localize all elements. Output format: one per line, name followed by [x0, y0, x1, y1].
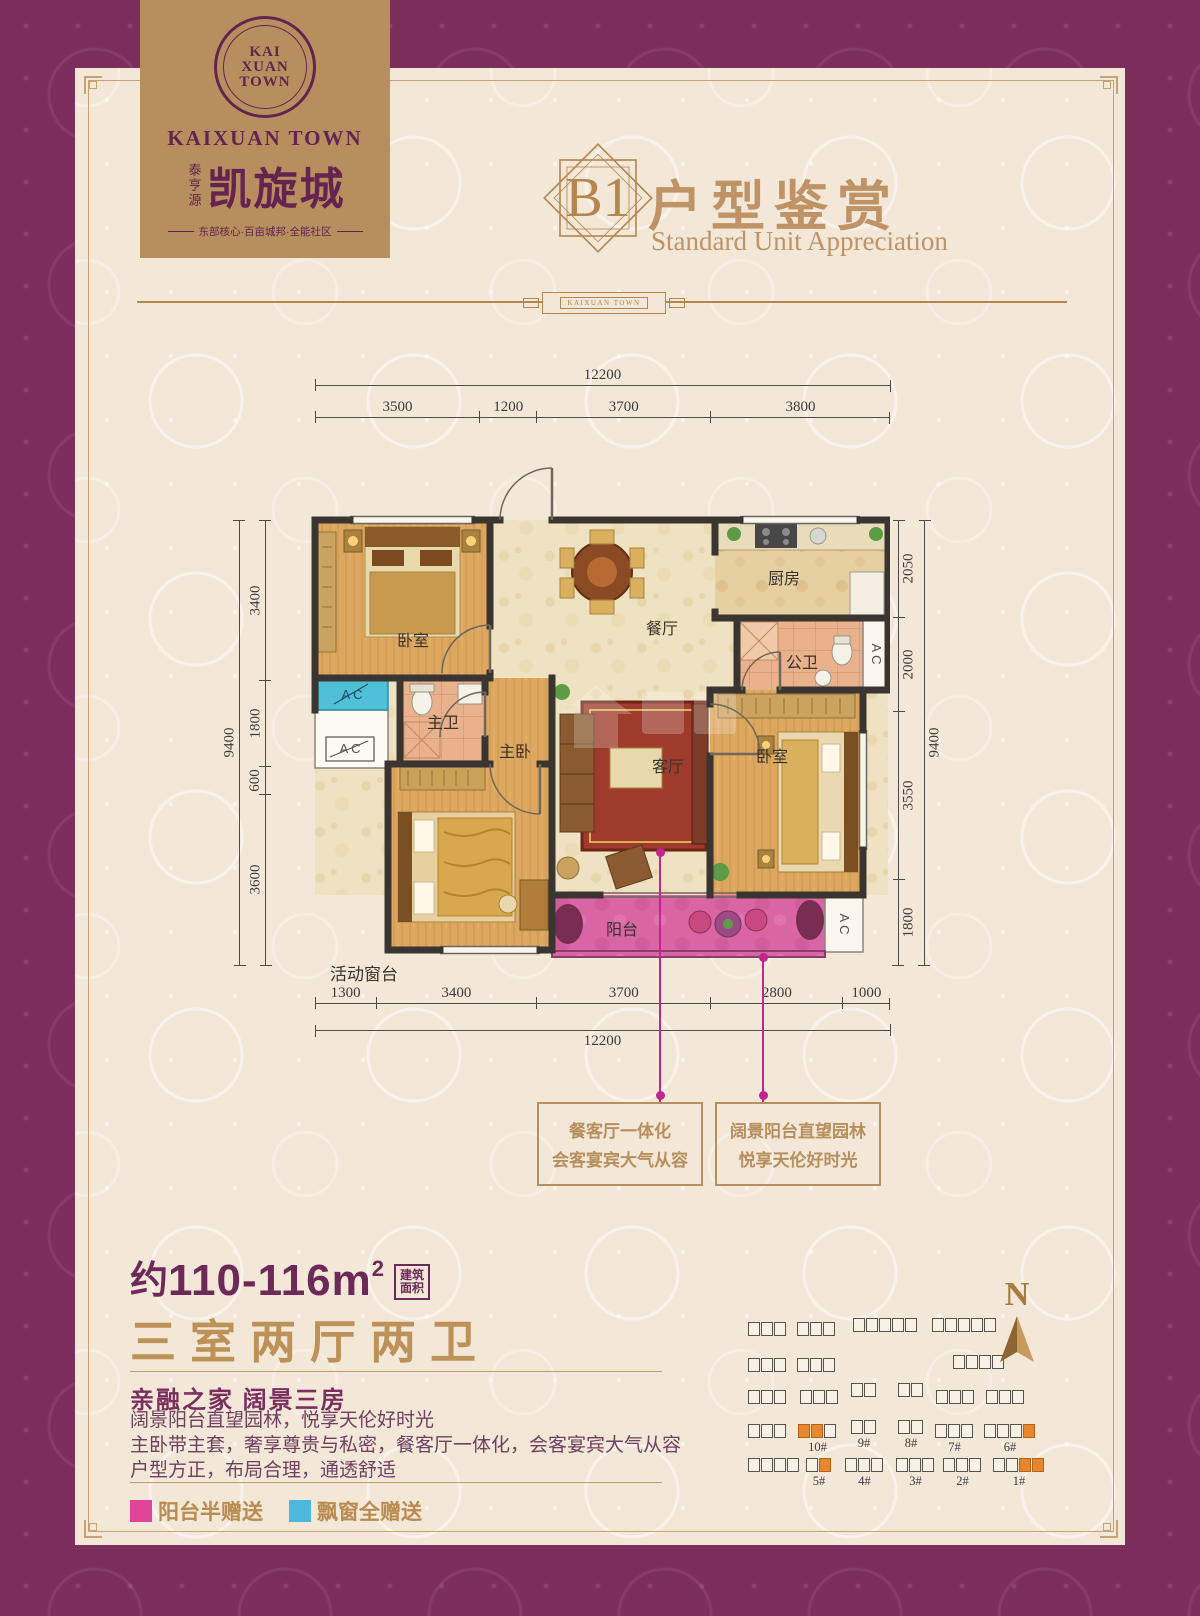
area-value: 110-116m — [168, 1258, 372, 1304]
building-unit — [999, 1390, 1011, 1404]
building-unit — [958, 1318, 970, 1332]
building-unit — [774, 1424, 786, 1438]
building-unit — [866, 1318, 878, 1332]
dim-segment: 600 — [246, 766, 266, 794]
brand-logo-block: KAI XUAN TOWN KAIXUAN TOWN 泰亨源 凯旋城 东部核心·… — [140, 0, 390, 258]
site-building — [806, 1458, 831, 1472]
site-building — [935, 1424, 973, 1438]
dim-segment: 2000 — [898, 617, 918, 712]
building-unit — [898, 1383, 910, 1397]
site-building — [936, 1390, 974, 1404]
room-label-master-bedroom: 主卧 — [499, 743, 531, 761]
building-unit — [948, 1424, 960, 1438]
site-plan: 10#9#8#7#6#5#4#3#2#1# — [700, 1270, 1130, 1505]
room-label-dining: 餐厅 — [646, 620, 678, 638]
site-building — [748, 1322, 786, 1336]
chair — [499, 895, 517, 913]
dim-segment: 3500 — [315, 398, 480, 418]
balcony-chair — [689, 911, 711, 933]
dim-segment: 1000 — [843, 984, 890, 1004]
building-unit — [979, 1355, 991, 1369]
site-building — [853, 1318, 917, 1332]
site-building — [748, 1424, 786, 1438]
building-unit — [761, 1424, 773, 1438]
description-line: 阔景阳台直望园林，悦享天伦好时光 — [130, 1408, 681, 1433]
building-unit — [800, 1390, 812, 1404]
building-label: 3# — [896, 1474, 935, 1489]
building-unit — [774, 1390, 786, 1404]
dim-segment: 9400 — [924, 520, 944, 965]
building-unit — [896, 1458, 908, 1472]
building-unit — [935, 1424, 947, 1438]
area-superscript: 2 — [372, 1258, 384, 1280]
building-unit — [997, 1424, 1009, 1438]
dim-top-total: 12200 — [315, 366, 890, 386]
callout-dot-icon — [759, 1091, 768, 1100]
building-unit — [892, 1318, 904, 1332]
room-label-kitchen: 厨房 — [768, 570, 800, 588]
building-label: 5# — [806, 1474, 832, 1489]
divider — [130, 1371, 662, 1372]
brand-name-en: KAIXUAN TOWN — [140, 126, 390, 151]
building-unit — [761, 1458, 773, 1472]
building-unit — [797, 1358, 809, 1372]
dim-bottom-total: 12200 — [315, 1030, 890, 1052]
side-table — [557, 857, 579, 879]
highlighted-unit — [1019, 1458, 1031, 1472]
site-building — [797, 1358, 835, 1372]
ac-label: A C — [340, 741, 361, 756]
divider-badge: KAIXUAN TOWN — [542, 292, 666, 314]
balcony-chair — [745, 909, 767, 931]
dim-segment: 3600 — [246, 795, 266, 965]
building-unit — [774, 1458, 786, 1472]
dim-left-segments: 340018006003600 — [246, 520, 266, 965]
sink — [810, 528, 826, 544]
description-block: 阔景阳台直望园林，悦享天伦好时光 主卧带主套，奢享尊贵与私密，餐客厅一体化，会客… — [130, 1408, 681, 1483]
kitchen-counter — [718, 522, 885, 550]
pink-swatch-icon — [130, 1500, 152, 1522]
building-label: 7# — [935, 1440, 974, 1455]
building-unit — [864, 1420, 876, 1434]
site-building — [932, 1318, 996, 1332]
building-label: 1# — [993, 1474, 1045, 1489]
dim-segment: 12200 — [315, 366, 890, 386]
site-building — [896, 1458, 934, 1472]
dim-segment: 12200 — [315, 1030, 890, 1052]
building-unit — [1010, 1424, 1022, 1438]
brand-monogram-icon: KAI XUAN TOWN — [214, 16, 316, 118]
plant — [553, 904, 583, 944]
brand-name: 凯旋城 — [208, 153, 346, 217]
building-label: 8# — [898, 1436, 924, 1451]
building-unit — [932, 1318, 944, 1332]
room-label-balcony: 阳台 — [606, 921, 638, 939]
building-unit — [748, 1322, 760, 1336]
brand-tagline: 东部核心·百亩城邦·全能社区 — [140, 224, 390, 239]
toilet — [412, 689, 432, 715]
building-unit — [774, 1322, 786, 1336]
building-unit — [823, 1322, 835, 1336]
building-unit — [956, 1458, 968, 1472]
ac-label: A C — [869, 644, 884, 665]
site-building — [748, 1390, 786, 1404]
dim-segment: 3800 — [711, 398, 890, 418]
frame-corner-icon — [1100, 1520, 1118, 1538]
building-unit — [858, 1458, 870, 1472]
frame-corner-icon — [84, 1520, 102, 1538]
dim-right-total: 9400 — [924, 520, 944, 965]
site-building — [898, 1420, 923, 1434]
building-label: 4# — [845, 1474, 884, 1489]
building-unit — [905, 1318, 917, 1332]
building-unit — [826, 1390, 838, 1404]
building-unit — [911, 1383, 923, 1397]
plant — [869, 527, 883, 541]
dim-segment: 1800 — [246, 681, 266, 766]
building-unit — [909, 1458, 921, 1472]
site-building — [851, 1383, 876, 1397]
frame-corner-icon — [1100, 76, 1118, 94]
site-building — [800, 1390, 838, 1404]
callout-line — [659, 852, 661, 1102]
plant — [711, 863, 729, 881]
building-label: 6# — [984, 1440, 1036, 1455]
callout-dot-icon — [656, 848, 665, 857]
blue-swatch-icon — [289, 1500, 311, 1522]
building-unit — [761, 1390, 773, 1404]
site-building — [993, 1458, 1044, 1472]
site-building — [797, 1322, 835, 1336]
dim-segment: 1200 — [480, 398, 537, 418]
plant — [727, 527, 741, 541]
building-unit — [748, 1390, 760, 1404]
callout-dot-icon — [759, 953, 768, 962]
legend-balcony: 阳台半赠送 — [130, 1496, 263, 1526]
description-line: 户型方正，布局合理，通透舒适 — [130, 1458, 681, 1483]
highlighted-unit — [1023, 1424, 1035, 1438]
highlighted-unit — [819, 1458, 831, 1472]
building-unit — [806, 1458, 818, 1472]
wardrobe — [718, 694, 855, 718]
site-building — [748, 1358, 786, 1372]
site-building — [851, 1420, 876, 1434]
closet — [400, 766, 485, 790]
building-unit — [949, 1390, 961, 1404]
dim-segment: 1300 — [315, 984, 376, 1004]
ac-label: A C — [837, 914, 852, 935]
room-label-guest-bath: 公卫 — [786, 655, 818, 672]
site-building — [984, 1424, 1035, 1438]
building-unit — [810, 1322, 822, 1336]
legend: 阳台半赠送 飘窗全赠送 — [130, 1496, 422, 1526]
building-unit — [984, 1318, 996, 1332]
building-unit — [851, 1383, 863, 1397]
site-building — [943, 1458, 981, 1472]
area-note: 建筑面积 — [394, 1264, 430, 1300]
site-building — [748, 1458, 799, 1472]
site-building — [898, 1383, 923, 1397]
dim-segment: 3700 — [537, 984, 711, 1004]
dim-segment: 2800 — [711, 984, 843, 1004]
ac-label: A C — [342, 687, 363, 702]
room-label-master-bath: 主卫 — [427, 714, 459, 732]
fridge — [850, 572, 884, 616]
building-unit — [871, 1458, 883, 1472]
building-unit — [953, 1355, 965, 1369]
building-unit — [961, 1424, 973, 1438]
dim-right-segments: 2050200035501800 — [898, 520, 918, 965]
building-unit — [943, 1458, 955, 1472]
building-unit — [761, 1322, 773, 1336]
building-unit — [774, 1358, 786, 1372]
building-unit — [1012, 1390, 1024, 1404]
building-label: 2# — [943, 1474, 982, 1489]
north-arrow-icon — [1000, 1316, 1034, 1362]
building-unit — [845, 1458, 857, 1472]
building-unit — [787, 1458, 799, 1472]
building-unit — [797, 1322, 809, 1336]
building-unit — [851, 1420, 863, 1434]
area-prefix: 约 — [130, 1258, 168, 1304]
site-building — [986, 1390, 1024, 1404]
dim-segment: 3550 — [898, 712, 918, 880]
unit-code: B1 — [538, 138, 658, 258]
building-unit — [962, 1390, 974, 1404]
site-building — [953, 1355, 1004, 1369]
brand-name-cn: 泰亨源 凯旋城 — [140, 153, 390, 217]
highlighted-unit — [798, 1424, 810, 1438]
basin — [815, 670, 831, 686]
dim-segment: 3400 — [246, 520, 266, 681]
building-unit — [966, 1355, 978, 1369]
highlighted-unit — [811, 1424, 823, 1438]
dim-top-segments: 3500120037003800 — [315, 398, 890, 418]
building-unit — [969, 1458, 981, 1472]
description-line: 主卧带主套，奢享尊贵与私密，餐客厅一体化，会客宴宾大气从容 — [130, 1433, 681, 1458]
building-unit — [879, 1318, 891, 1332]
room-label-bedroom2: 卧室 — [756, 748, 788, 766]
building-unit — [748, 1358, 760, 1372]
building-unit — [993, 1458, 1005, 1472]
callout-dot-icon — [656, 1091, 665, 1100]
plant — [796, 900, 824, 940]
page-subtitle: Standard Unit Appreciation — [651, 226, 948, 257]
plant — [554, 684, 570, 700]
north-label: N — [996, 1276, 1038, 1314]
building-unit — [813, 1390, 825, 1404]
building-unit — [911, 1420, 923, 1434]
dim-segment: 3700 — [537, 398, 711, 418]
poster-page: KAI XUAN TOWN KAIXUAN TOWN 泰亨源 凯旋城 东部核心·… — [0, 0, 1200, 1616]
floor-plan: 卧室 餐厅 厨房 公卫 主卫 主卧 客厅 卧室 阳台 A C A C A C A… — [310, 452, 890, 967]
layout-title: 三室两厅两卫 — [130, 1306, 490, 1372]
balcony-highlight — [552, 895, 825, 958]
building-unit — [864, 1383, 876, 1397]
building-unit — [810, 1358, 822, 1372]
callout-balcony: 阔景阳台直望园林 悦享天伦好时光 — [715, 1102, 881, 1186]
room-label-bedroom1: 卧室 — [397, 632, 429, 650]
building-unit — [824, 1424, 836, 1438]
site-building — [845, 1458, 883, 1472]
dim-segment: 2050 — [898, 520, 918, 617]
legend-baywindow: 飘窗全赠送 — [289, 1496, 422, 1526]
dim-segment: 9400 — [220, 520, 240, 965]
building-unit — [761, 1358, 773, 1372]
divider — [130, 1482, 662, 1483]
frame-corner-icon — [84, 76, 102, 94]
building-unit — [945, 1318, 957, 1332]
building-unit — [984, 1424, 996, 1438]
stove — [755, 524, 797, 548]
callout-dining: 餐客厅一体化 会客宴宾大气从容 — [537, 1102, 703, 1186]
dim-segment: 3400 — [376, 984, 536, 1004]
callout-line — [762, 957, 764, 1102]
window-note: 活动窗台 — [330, 960, 398, 985]
site-building — [798, 1424, 836, 1438]
building-unit — [823, 1358, 835, 1372]
dim-bottom-segments: 13003400370028001000 — [315, 984, 890, 1004]
dim-left-total: 9400 — [220, 520, 240, 965]
area-line: 约 110-116m 2 建筑面积 — [130, 1258, 430, 1304]
building-unit — [748, 1424, 760, 1438]
building-unit — [748, 1458, 760, 1472]
building-label: 10# — [798, 1440, 837, 1455]
building-unit — [971, 1318, 983, 1332]
dim-segment: 1800 — [898, 880, 918, 965]
wardrobe — [318, 532, 336, 652]
building-unit — [922, 1458, 934, 1472]
brand-prefix: 泰亨源 — [185, 163, 204, 208]
room-label-living: 客厅 — [652, 758, 684, 776]
desk — [520, 880, 548, 930]
building-unit — [986, 1390, 998, 1404]
building-unit — [898, 1420, 910, 1434]
building-unit — [853, 1318, 865, 1332]
building-label: 9# — [851, 1436, 877, 1451]
highlighted-unit — [1032, 1458, 1044, 1472]
building-unit — [936, 1390, 948, 1404]
building-unit — [1006, 1458, 1018, 1472]
